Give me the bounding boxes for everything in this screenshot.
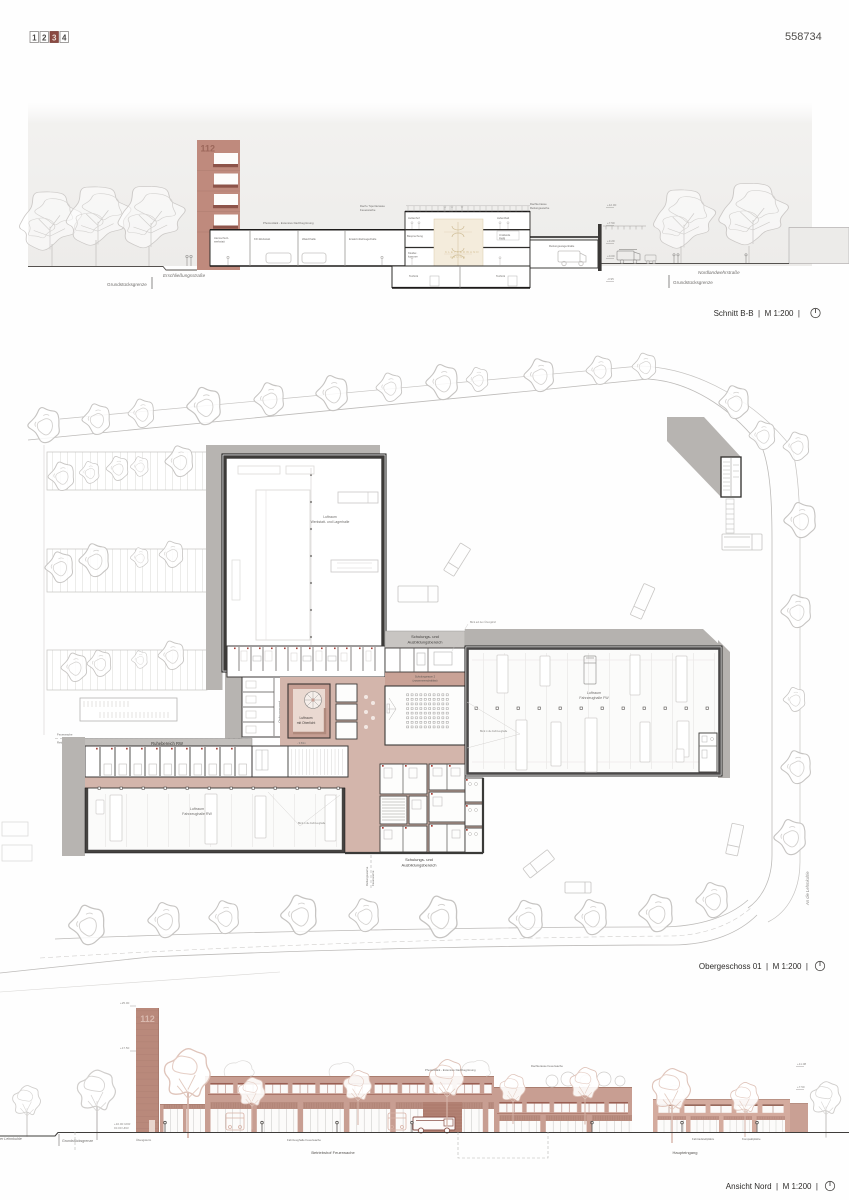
svg-text:Dachterasse Feuerwache: Dachterasse Feuerwache	[531, 1064, 563, 1068]
svg-text:Technik: Technik	[496, 274, 506, 278]
svg-text:Grundstücksgrenze: Grundstücksgrenze	[107, 282, 147, 287]
svg-text:Grundstücksgrenze: Grundstücksgrenze	[673, 280, 713, 285]
svg-text:Photovoltaik - Extensive Dachb: Photovoltaik - Extensive Dachbegrünung	[263, 221, 314, 225]
svg-text:Ruhebereich RW: Ruhebereich RW	[151, 741, 183, 746]
svg-text:Übungsturm: Übungsturm	[136, 1138, 152, 1142]
svg-text:Rettungswagenhalle: Rettungswagenhalle	[549, 244, 575, 248]
svg-text:KLETTERWAND: KLETTERWAND	[445, 250, 480, 254]
svg-text:Kfz-Werkstatt: Kfz-Werkstatt	[254, 237, 270, 241]
svg-text:Fahrzeughalle FW: Fahrzeughalle FW	[579, 696, 609, 700]
svg-text:Schnitt B-B | M 1:200 |: Schnitt B-B | M 1:200 |	[714, 309, 800, 318]
svg-text:±0.00 UKR: ±0.00 UKR	[114, 1126, 129, 1130]
svg-text:Fahrzeughalle Feuerwache: Fahrzeughalle Feuerwache	[287, 1138, 321, 1142]
svg-text:+11.08: +11.08	[797, 1062, 806, 1066]
svg-text:Luftraum: Luftraum	[190, 807, 204, 811]
svg-text:Aufenthalt: Aufenthalt	[497, 216, 509, 220]
svg-text:2: 2	[42, 34, 47, 43]
svg-text:Schulungs- und: Schulungs- und	[411, 634, 439, 639]
svg-text:Besprechung: Besprechung	[407, 234, 423, 238]
svg-text:4: 4	[62, 34, 67, 43]
svg-text:+7.50: +7.50	[607, 221, 615, 225]
svg-text:Technik: Technik	[409, 274, 419, 278]
svg-text:Feuerwache: Feuerwache	[57, 733, 73, 737]
svg-text:Schulungs- und: Schulungs- und	[405, 857, 433, 862]
svg-text:Ausbildungsbereich: Ausbildungsbereich	[402, 863, 437, 868]
svg-text:+3.20: +3.20	[607, 239, 615, 243]
svg-text:mit Oberlicht: mit Oberlicht	[297, 721, 316, 725]
svg-text:+25.00: +25.00	[120, 1001, 130, 1005]
svg-text:Luftraum: Luftraum	[323, 515, 337, 519]
svg-text:-3.95: -3.95	[607, 277, 614, 281]
svg-text:+12.00: +12.00	[607, 203, 617, 207]
svg-text:er Lehmkuhle: er Lehmkuhle	[0, 1137, 22, 1141]
svg-text:Umkleide: Umkleide	[499, 233, 511, 237]
svg-text:Kompaktplätze: Kompaktplätze	[742, 1137, 761, 1141]
svg-text:Schulungsraum 2: Schulungsraum 2	[415, 675, 436, 679]
svg-text:Luftraum: Luftraum	[299, 716, 312, 720]
svg-text:Fahrzeughalle RW: Fahrzeughalle RW	[182, 812, 212, 816]
svg-text:Photovoltaik - Extensive Dachb: Photovoltaik - Extensive Dachbegrünung	[425, 1068, 476, 1072]
svg-text:(zusammenschaltbar): (zusammenschaltbar)	[413, 679, 438, 683]
svg-text:112: 112	[140, 1014, 155, 1024]
svg-text:Blick in die Fahrzeughalle: Blick in die Fahrzeughalle	[480, 730, 508, 733]
svg-text:Fahrradstellplätze: Fahrradstellplätze	[692, 1137, 715, 1141]
svg-text:Ersatzmittel/Lagerhalle: Ersatzmittel/Lagerhalle	[349, 237, 377, 241]
svg-text:- 3.50m: - 3.50m	[297, 741, 306, 745]
svg-text:werkstatt: werkstatt	[214, 240, 225, 244]
svg-text:Obergeschoss 01 | M 1:200 |: Obergeschoss 01 | M 1:200 |	[699, 962, 808, 971]
svg-text:Luftraum: Luftraum	[587, 691, 601, 695]
svg-text:Werkstatt- und Lagerhalle: Werkstatt- und Lagerhalle	[311, 520, 350, 524]
svg-text:Erschließungsstraße: Erschließungsstraße	[163, 273, 206, 278]
svg-text:3: 3	[52, 34, 57, 43]
svg-text:1: 1	[32, 34, 37, 43]
svg-text:Nordlandwehrstraße: Nordlandwehrstraße	[698, 270, 740, 275]
svg-text:ÜBUNG: ÜBUNG	[450, 255, 466, 259]
svg-text:Blick in die Fahrzeughalle: Blick in die Fahrzeughalle	[298, 822, 326, 825]
svg-text:RWB: RWB	[499, 237, 505, 241]
svg-text:Kleider-: Kleider-	[408, 251, 417, 255]
svg-text:+17.50: +17.50	[120, 1046, 130, 1050]
svg-text:Feuerwache: Feuerwache	[371, 870, 375, 886]
svg-text:Blick auf den Übungshof: Blick auf den Übungshof	[470, 621, 496, 624]
svg-text:+7.50: +7.50	[797, 1085, 805, 1089]
svg-text:112: 112	[201, 144, 216, 154]
svg-text:Ansicht Nord | M 1:200 |: Ansicht Nord | M 1:200 |	[726, 1182, 818, 1191]
svg-text:Betriebshof Feuerwache: Betriebshof Feuerwache	[311, 1150, 355, 1155]
svg-text:Feuerwache: Feuerwache	[360, 208, 376, 212]
svg-text:Ausbildungsbereich: Ausbildungsbereich	[408, 640, 443, 645]
svg-text:+0.00: +0.00	[607, 254, 615, 258]
svg-text:Rettungswache: Rettungswache	[365, 866, 369, 886]
svg-text:Rettungswache: Rettungswache	[530, 206, 550, 210]
svg-text:Waschhalle: Waschhalle	[302, 237, 316, 241]
svg-text:Außenhof: Außenhof	[408, 216, 420, 220]
svg-text:Atemschutz-: Atemschutz-	[214, 236, 229, 240]
svg-text:Haupteingang: Haupteingang	[673, 1150, 698, 1155]
svg-text:An die Lehmkuhle: An die Lehmkuhle	[805, 871, 810, 906]
svg-text:558734: 558734	[785, 31, 822, 43]
svg-text:Grundstücksgrenze: Grundstücksgrenze	[62, 1139, 93, 1143]
